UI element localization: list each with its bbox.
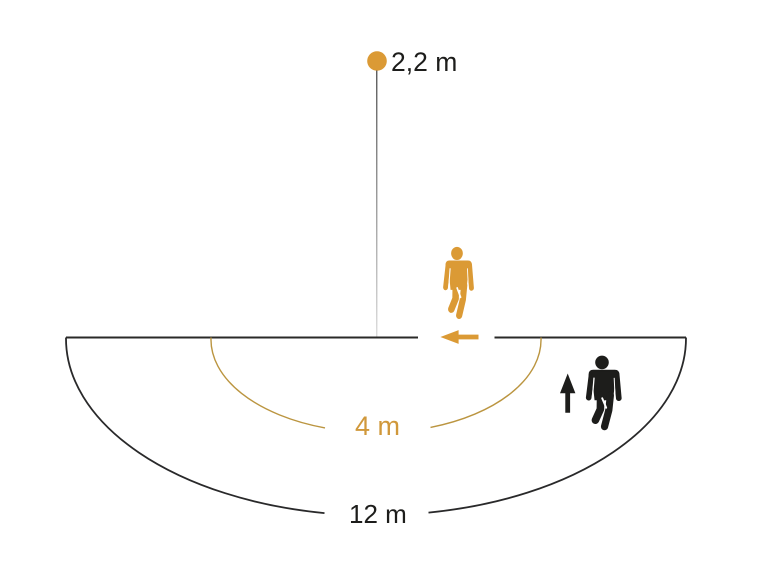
svg-text:2,2 m: 2,2 m [391, 47, 457, 77]
svg-text:4 m: 4 m [355, 411, 400, 441]
svg-text:12 m: 12 m [349, 499, 407, 529]
